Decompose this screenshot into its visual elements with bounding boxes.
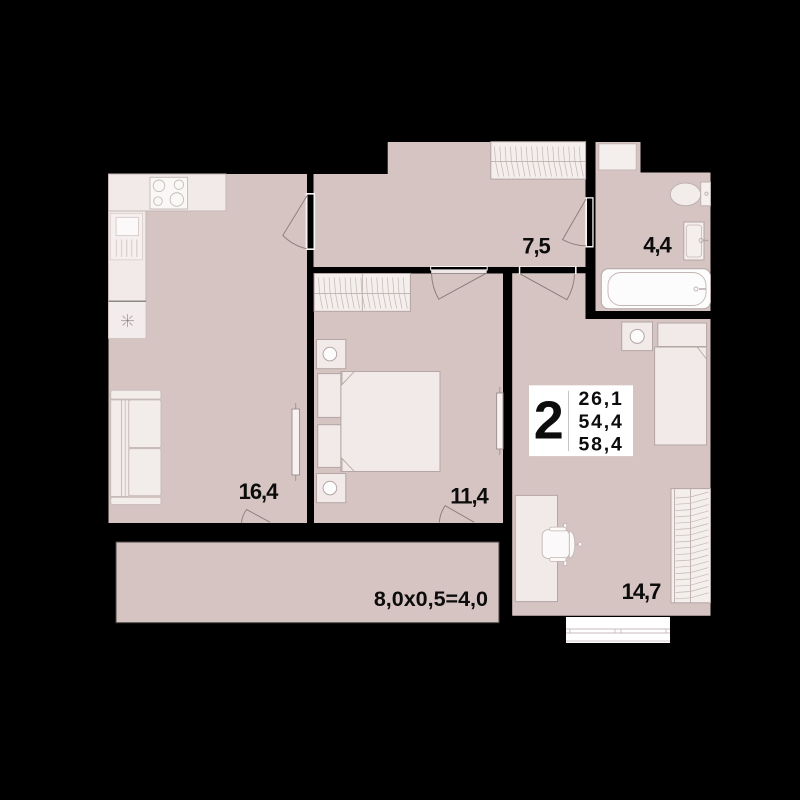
svg-text:26,1: 26,1: [579, 388, 624, 410]
svg-text:11,4: 11,4: [450, 484, 489, 509]
svg-text:8,0x0,5=4,0: 8,0x0,5=4,0: [374, 587, 488, 611]
svg-text:16,4: 16,4: [239, 479, 280, 504]
svg-text:54,4: 54,4: [579, 411, 624, 433]
svg-text:14,7: 14,7: [622, 579, 662, 604]
svg-text:58,4: 58,4: [579, 434, 624, 456]
svg-text:2: 2: [534, 391, 564, 451]
svg-text:7,5: 7,5: [522, 234, 550, 259]
svg-text:4,4: 4,4: [643, 233, 672, 258]
